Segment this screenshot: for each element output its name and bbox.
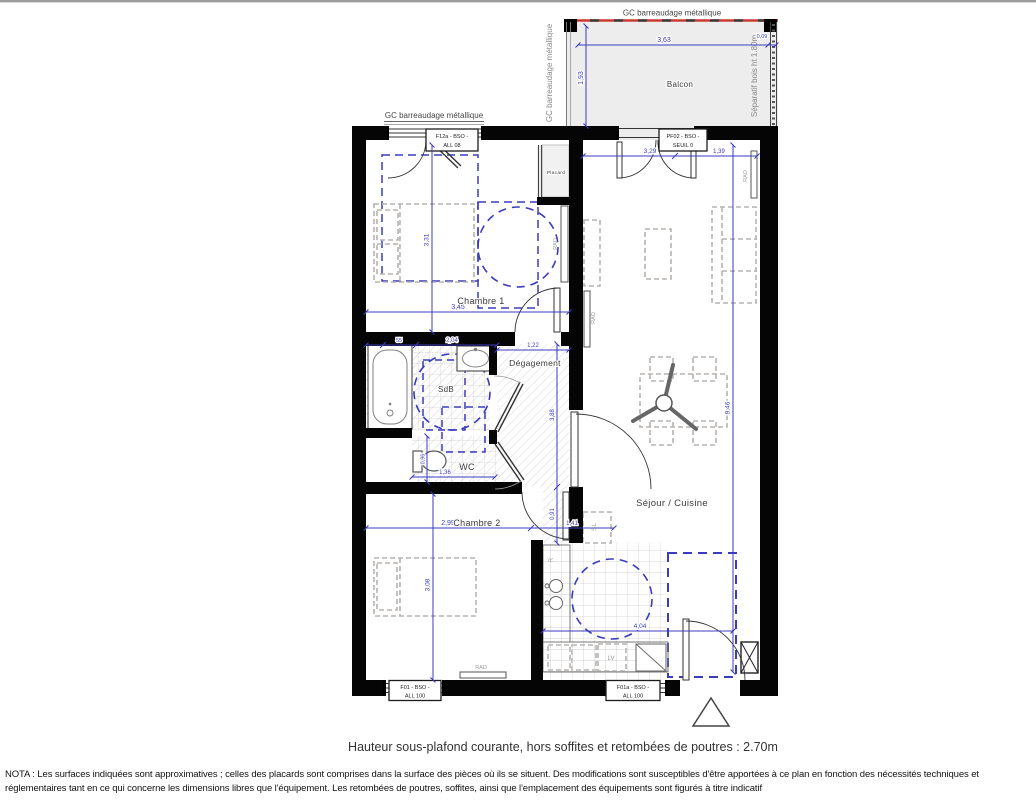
nota-line2: réglementaires tant en ce qui concerne l… (5, 783, 762, 794)
washbasin (457, 346, 494, 371)
entry-zone (668, 553, 736, 677)
rad-label-chambre1: RAD (553, 238, 559, 250)
dim-hall-height: 0,91 (550, 508, 556, 520)
window-label-f01a-line2: ALL 100 (623, 694, 643, 700)
gc-railing-side-label: GC barreaudage métallique (545, 23, 554, 122)
room-label-balcon: Balcon (667, 80, 693, 89)
dim-chambre2-height: 3,08 (425, 578, 432, 591)
gc-window-label: GC barreaudage métallique (385, 111, 484, 120)
window-label-pf02: PF02 - BSO - SEUIL 0 (659, 129, 707, 151)
lv-label: LV (608, 656, 615, 662)
window-label-f01-line1: F01 - BSO - (400, 685, 430, 691)
rad-label-sejour-top: RAD (743, 170, 749, 182)
dim-degagement-height: 3,88 (550, 409, 556, 421)
clearance-chambre1-b (478, 202, 538, 308)
radiator-sejour-left (584, 291, 590, 347)
plan-caption: Hauteur sous-plafond courante, hors soff… (90, 740, 1036, 754)
dim-sdb-b: 2,04 (446, 338, 458, 344)
room-label-wc: WC (459, 462, 475, 472)
dim-sdb-a: 55 (396, 338, 402, 344)
room-label-sejour: Séjour / Cuisine (636, 498, 708, 509)
window-label-pf02-line2: SEUIL 0 (673, 143, 693, 149)
radiator-chambre1 (561, 206, 568, 282)
dim-wc-height: 0,96 (421, 454, 427, 465)
wood-separator-label: Séparatif bois ht 1.80m (750, 35, 759, 118)
dim-kitchen-width: 4,04 (634, 623, 647, 630)
dim-sejour-door: 1,39 (713, 149, 725, 155)
chair (693, 421, 716, 445)
window-label-f12a-line1: F12a - BSO - (436, 134, 469, 140)
window-label-f01: F01 - BSO - ALL 100 (389, 681, 441, 701)
bathtub (368, 345, 412, 429)
tv-unit (645, 229, 671, 279)
dim-chambre1-height: 3,31 (424, 233, 431, 246)
sl-label: SL (591, 523, 598, 531)
dim-sejour-width: 3,29 (644, 148, 657, 155)
balcony: GC barreaudage métallique GC barreaudage… (545, 9, 778, 127)
room-label-sdb: SdB (438, 385, 454, 394)
chair (693, 357, 716, 381)
rad-label-chambre2: RAD (475, 665, 487, 671)
dim-balcony-width: 3,63 (657, 37, 671, 44)
dim-degagement-width: 1,22 (527, 343, 539, 349)
wall-left (352, 126, 366, 696)
sofa (712, 207, 756, 303)
window-label-f12a: F12a - BSO - ALL 08 (426, 129, 478, 151)
window-label-f12a-line2: ALL 08 (443, 143, 460, 149)
room-label-degagement: Dégagement (509, 358, 561, 368)
radiator-chambre2 (460, 672, 506, 678)
floor-plan-drawing: GC barreaudage métallique GC barreaudage… (0, 0, 1036, 800)
wall-chambre2-right (531, 540, 543, 680)
room-label-chambre2: Chambre 2 (453, 518, 500, 528)
dim-sejour-height: 9,46 (725, 401, 732, 414)
r-label: R (549, 557, 555, 562)
radiator-sejour-top (751, 151, 757, 198)
sink-bowl (550, 580, 563, 593)
chair (650, 421, 673, 445)
door-chambre1 (515, 288, 560, 332)
entrance-marker (693, 698, 729, 726)
door-sejour (571, 412, 651, 489)
sink-bowl (550, 597, 563, 610)
cabinet (584, 220, 600, 286)
wall-right (760, 126, 778, 696)
dim-chambre2-ext: 1,41 (566, 521, 578, 527)
floor-plan-page: GC barreaudage métallique GC barreaudage… (0, 0, 1036, 800)
dim-balcony-depth: 1,93 (578, 71, 585, 85)
window-label-f01a-line1: F01a - BSO - (617, 685, 650, 691)
page-top-border (0, 0, 1036, 2)
wall-sejour-left (569, 140, 583, 410)
rad-label-sejour-left: RAD (591, 312, 597, 324)
clearance-chambre1-a (382, 155, 478, 281)
gc-railing-top-label: GC barreaudage métallique (623, 9, 722, 18)
room-label-placard: Placard (547, 170, 565, 176)
window-label-f01-line2: ALL 100 (405, 694, 425, 700)
dim-wc-width: 1,36 (439, 470, 451, 476)
nota-line1: NOTA : Les surfaces indiquées sont appro… (5, 769, 979, 780)
window-label-pf02-line1: PF02 - BSO - (666, 134, 699, 140)
turning-circle-chambre1 (478, 207, 558, 287)
room-label-chambre1: Chambre 1 (457, 296, 504, 306)
window-label-f01a: F01a - BSO - ALL 100 (606, 681, 660, 701)
dim-balcony-gap: 0,09 (757, 34, 768, 40)
toilet (413, 451, 446, 472)
